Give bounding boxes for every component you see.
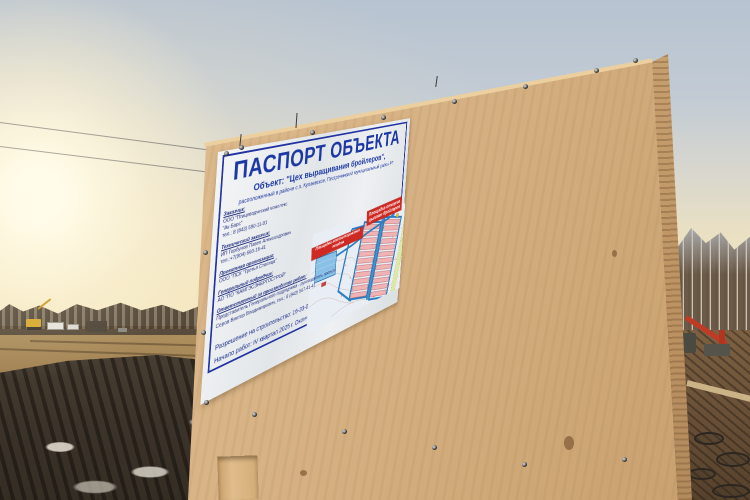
- grommet: [342, 429, 347, 434]
- wood-knot: [564, 436, 574, 450]
- grommet: [204, 400, 209, 405]
- grommet: [252, 412, 257, 417]
- construction-site-photo: ПАСПОРТ ОБЪЕКТА Объект: "Цех выращивания…: [0, 0, 750, 500]
- grommet: [432, 445, 437, 450]
- wooden-post: [217, 455, 259, 500]
- grommet: [310, 130, 315, 135]
- grommet: [522, 462, 527, 467]
- utility-block: [396, 214, 399, 217]
- grommet: [594, 68, 599, 73]
- grommet: [633, 58, 638, 63]
- excavator: [26, 319, 41, 327]
- grommet: [224, 151, 229, 156]
- wire-coil: [688, 468, 716, 480]
- crane-cab: [704, 344, 730, 356]
- wire-coil: [712, 484, 750, 498]
- grommet: [201, 330, 206, 335]
- white-truck: [47, 322, 64, 330]
- site-shed: [86, 321, 107, 332]
- white-truck: [67, 324, 79, 330]
- grommet: [622, 457, 627, 462]
- wire-coil: [716, 452, 750, 467]
- excavator-tracks: [27, 327, 41, 330]
- grommet: [203, 250, 208, 255]
- wood-knot: [300, 470, 307, 476]
- grommet: [523, 84, 528, 89]
- wire-coil: [694, 432, 724, 445]
- wood-knot: [612, 250, 617, 257]
- grommet: [452, 99, 457, 104]
- grommet: [381, 115, 386, 120]
- car: [118, 328, 127, 332]
